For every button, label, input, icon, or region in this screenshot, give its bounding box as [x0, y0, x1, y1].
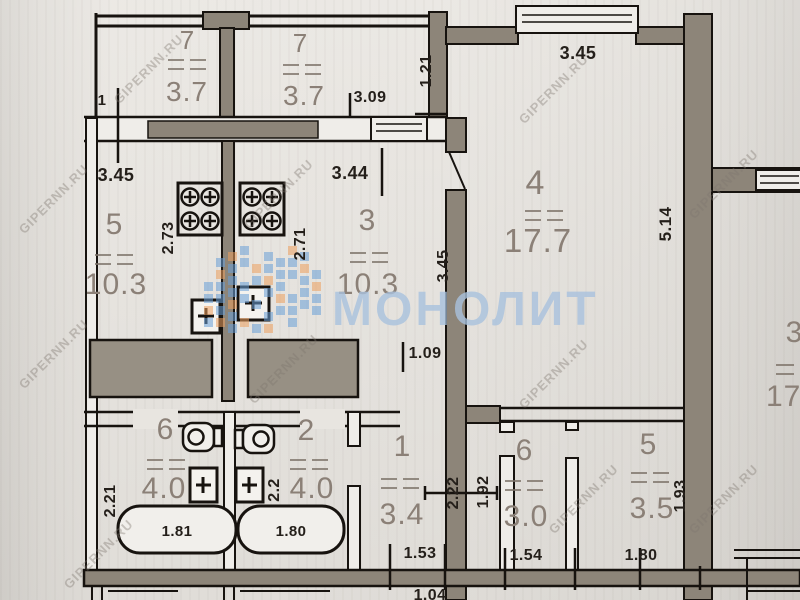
wall-central	[446, 118, 466, 152]
toilet-icon	[183, 423, 222, 451]
room-number-living: 4	[513, 166, 557, 200]
wall-balcony-divider	[220, 28, 234, 118]
area-separator	[90, 252, 138, 262]
wall	[636, 27, 688, 44]
window-room4	[516, 6, 638, 33]
dim-bathtub-1-80: 1.80	[266, 524, 316, 539]
window-neighbor	[756, 170, 800, 190]
dim-5-14: 5.14	[655, 194, 675, 254]
room-number-wc-a: 6	[502, 436, 546, 466]
wall-hall	[348, 486, 360, 570]
dim-1-04: 1.04	[405, 588, 455, 600]
window-left	[371, 117, 427, 141]
wall	[466, 406, 500, 423]
room-area-room5: 10.3	[80, 270, 152, 300]
bottom-left-walls	[92, 586, 330, 600]
room-area-living: 17.7	[494, 224, 582, 257]
wall	[566, 422, 578, 430]
room-number-balcony-right: 7	[278, 30, 322, 56]
dim-1-80-wc: 1.80	[617, 548, 665, 564]
wall-hall	[348, 412, 360, 446]
floor-plan-image: МОНОЛИТ GIPERNN.RU GIPERNN.RU GIPERNN.RU…	[0, 0, 800, 600]
sink-icon	[236, 468, 263, 502]
builtin-closet	[90, 340, 212, 397]
room-number-kitchen: 3	[345, 206, 389, 236]
area-separator	[345, 250, 393, 260]
dim-3-45-room4: 3.45	[552, 44, 604, 62]
wall-bottom	[84, 570, 800, 586]
dim-1-93: 1.93	[671, 466, 691, 526]
brand-watermark: МОНОЛИТ	[332, 282, 599, 337]
wall	[500, 422, 514, 432]
room-area-bath-right: 4.0	[280, 474, 344, 504]
area-separator	[376, 476, 424, 486]
dim-1-54: 1.54	[502, 548, 550, 564]
room-number-bath-right: 2	[284, 416, 328, 446]
dim-1-21: 1.21	[417, 41, 437, 101]
stove-icon	[178, 183, 222, 235]
dim-1-92: 1.92	[474, 462, 494, 522]
area-separator	[772, 362, 798, 372]
dim-3-44: 3.44	[326, 164, 374, 182]
room-number-room5: 5	[92, 210, 136, 240]
room-number-bath-left: 6	[143, 415, 187, 445]
dim-tick-1: 1	[94, 93, 110, 108]
area-separator	[142, 457, 190, 467]
wall	[446, 27, 518, 44]
dim-2-71: 2.71	[291, 214, 311, 274]
area-separator	[518, 208, 570, 218]
balcony-door-unit	[148, 121, 318, 138]
dim-3-45-kitchen-v: 3.45	[434, 236, 454, 296]
dim-1-09: 1.09	[405, 346, 445, 362]
room-area-bath-left: 4.0	[128, 474, 200, 504]
room-area-balcony-right: 3.7	[272, 82, 336, 110]
room-area-neighbor: 17	[766, 382, 800, 412]
dim-1-53: 1.53	[396, 546, 444, 562]
area-separator	[280, 62, 324, 72]
dim-2-73: 2.73	[159, 208, 179, 268]
dim-bathtub-1-81: 1.81	[152, 524, 202, 539]
dim-3-45-top-left: 3.45	[92, 166, 140, 184]
dim-2-2: 2.2	[265, 460, 285, 520]
wall	[203, 12, 249, 29]
door-leaf	[449, 152, 465, 189]
room-number-wc-b: 5	[626, 430, 670, 460]
area-separator	[285, 457, 333, 467]
dim-3-09: 3.09	[346, 90, 394, 106]
dim-2-21: 2.21	[101, 471, 121, 531]
area-separator	[500, 478, 548, 488]
room-area-balcony-left: 3.7	[155, 78, 219, 106]
room-number-hall: 1	[380, 432, 424, 462]
area-separator	[165, 57, 209, 67]
dim-2-22: 2.22	[444, 463, 464, 523]
toilet-icon	[235, 425, 274, 453]
area-separator	[626, 470, 674, 480]
room-area-hall: 3.4	[370, 500, 434, 530]
room-number-neighbor: 3	[772, 318, 800, 348]
